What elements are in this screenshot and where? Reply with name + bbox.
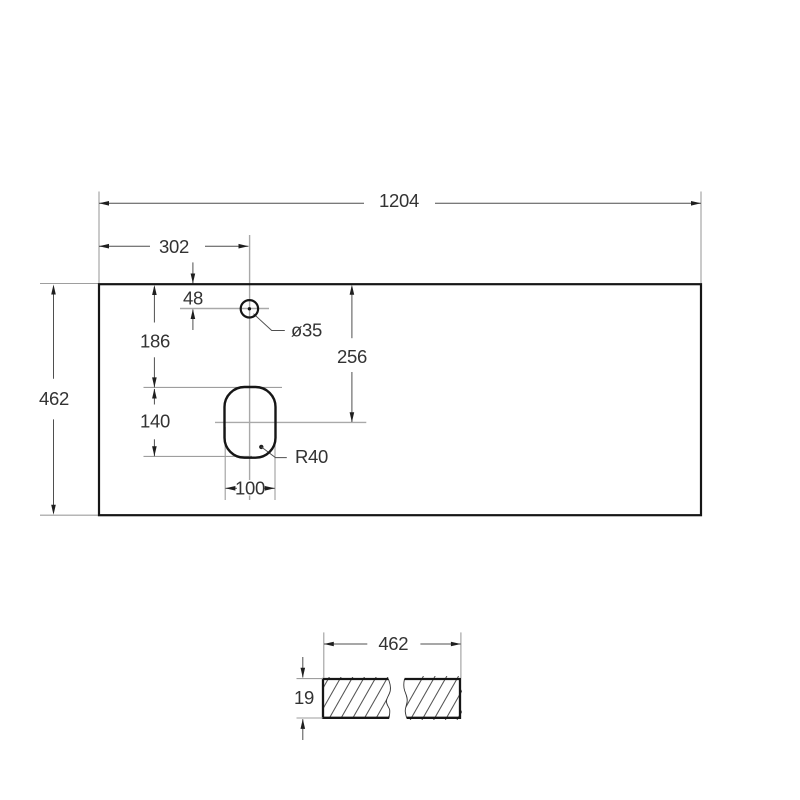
- svg-text:462: 462: [378, 633, 408, 654]
- svg-text:1204: 1204: [379, 190, 419, 211]
- svg-text:19: 19: [294, 687, 314, 708]
- svg-text:302: 302: [159, 236, 189, 257]
- svg-text:462: 462: [39, 388, 69, 409]
